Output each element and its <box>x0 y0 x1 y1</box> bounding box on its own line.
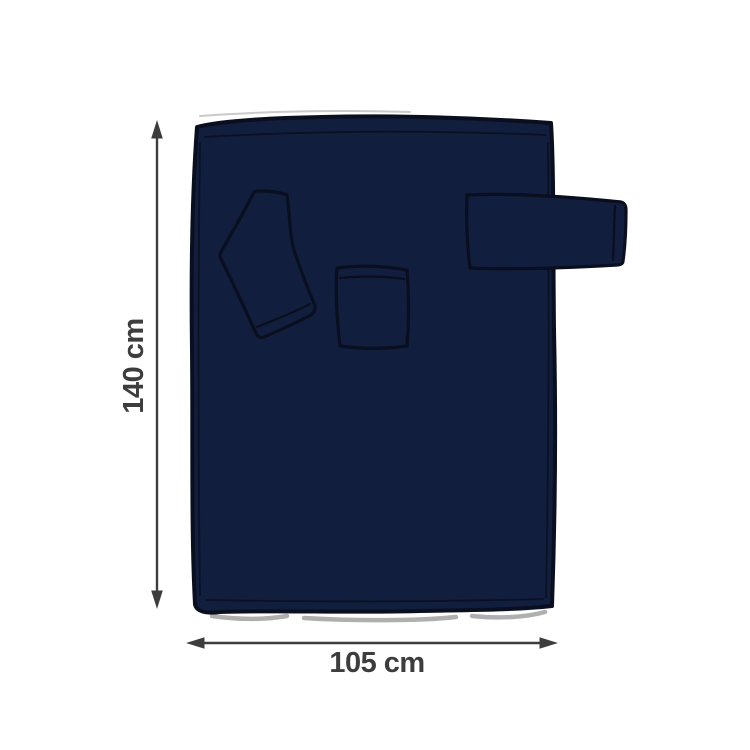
width-dimension-label: 105 cm <box>292 645 462 681</box>
blanket-dimension-diagram <box>0 0 750 750</box>
blanket-body-shape <box>192 116 555 612</box>
width-arrow-head-left-icon <box>186 637 205 649</box>
canvas: 140 cm 105 cm <box>0 0 750 750</box>
width-arrow-head-right-icon <box>540 637 559 649</box>
height-arrow-head-down-icon <box>151 591 163 610</box>
blanket-illustration <box>192 116 626 612</box>
height-arrow-head-up-icon <box>151 120 163 139</box>
height-dimension-label: 140 cm <box>116 281 152 451</box>
right-sleeve-shape <box>467 194 626 268</box>
height-dimension-arrow <box>151 120 163 609</box>
